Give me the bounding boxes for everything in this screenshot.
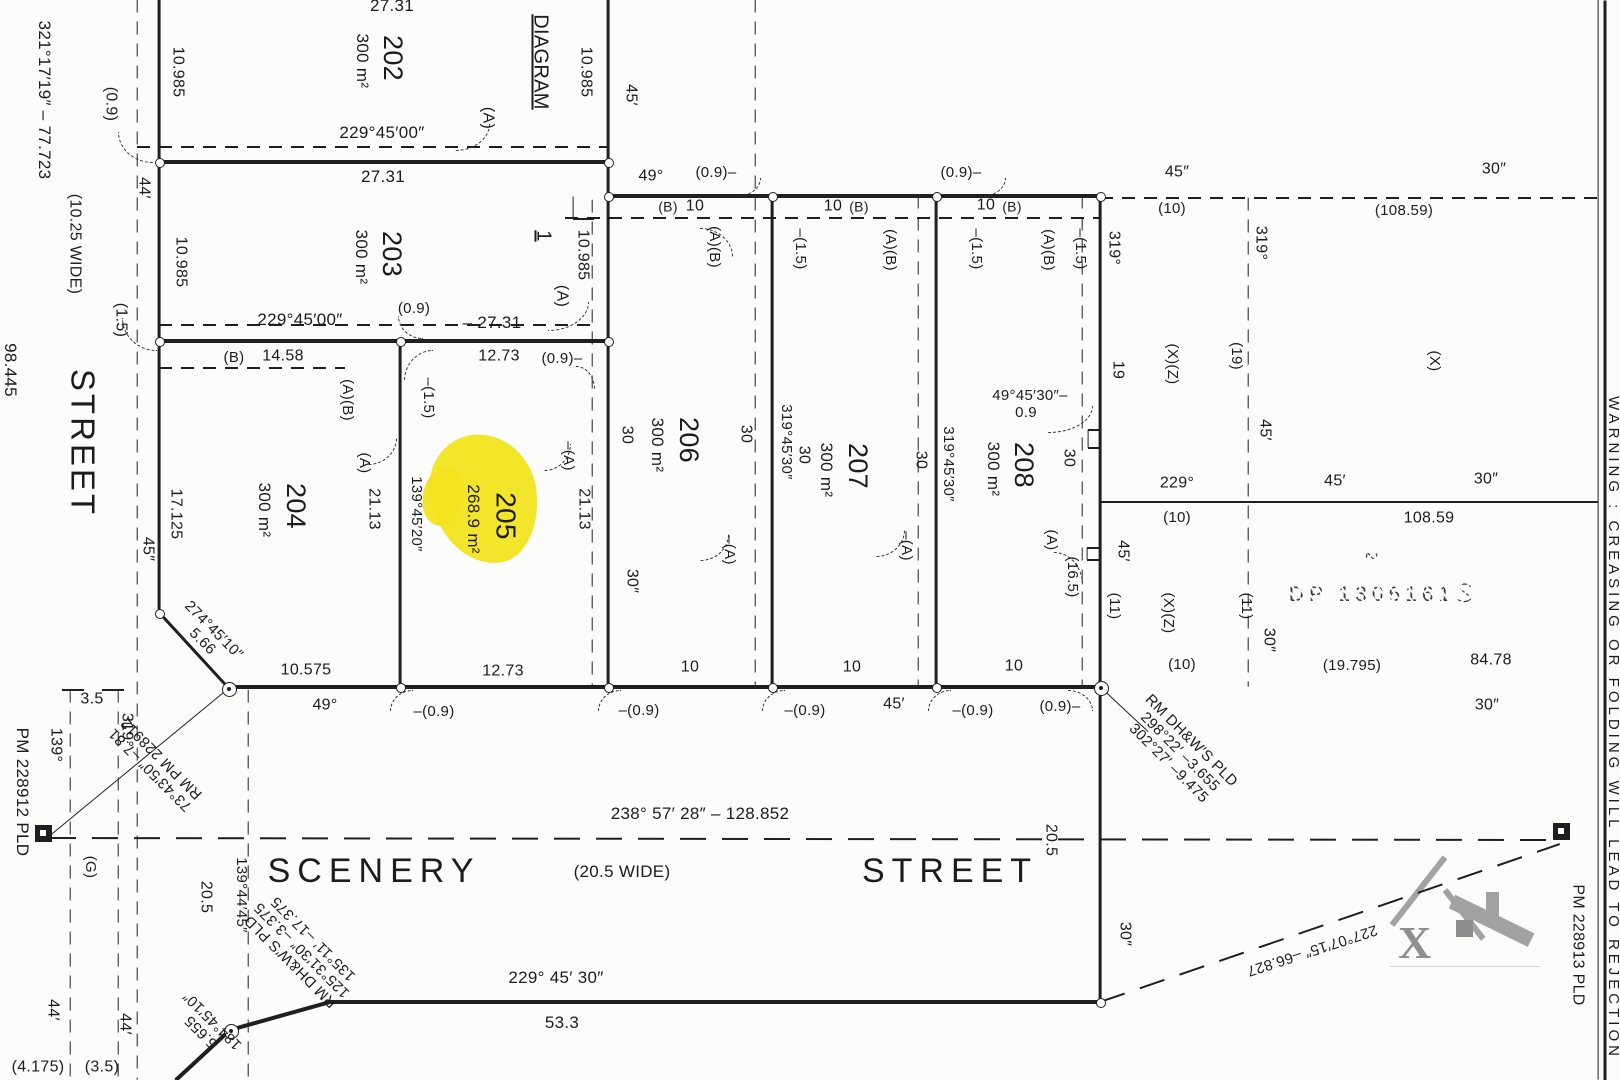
- notch: [1087, 547, 1100, 548]
- dim: –(0.9): [953, 703, 994, 719]
- dim: 53.3: [545, 1014, 579, 1032]
- dim: 10.575: [281, 663, 332, 680]
- bearing: 49°45′30″–: [992, 388, 1068, 404]
- bearing: 319°: [1105, 231, 1122, 265]
- dim: 10: [824, 199, 842, 216]
- dim: –(1.5): [1072, 229, 1088, 270]
- dim: –(A): [898, 531, 914, 561]
- dim: 30″: [623, 569, 640, 593]
- lot-204-number: 204: [282, 483, 310, 529]
- dim: 0.9: [1015, 405, 1037, 421]
- easement: [754, 0, 755, 687]
- boundary: [159, 339, 608, 342]
- dim: 17.125: [167, 489, 184, 540]
- notch: [572, 197, 573, 219]
- dim: (B): [849, 200, 869, 215]
- pm-228912-label: PM 228912 PLD: [13, 728, 31, 857]
- dim: –(A): [721, 535, 737, 565]
- warning-text: WARNING : CREASING OR FOLDING WILL LEAD …: [1605, 396, 1620, 1060]
- dim: (0.9)–: [542, 351, 583, 367]
- dim: 10: [843, 660, 861, 677]
- lot-207-number: 207: [844, 443, 872, 489]
- dim: 44′: [116, 1013, 133, 1035]
- dim: 45′: [1114, 540, 1131, 562]
- lot-202-number: 202: [379, 35, 407, 81]
- dim: 10.985: [169, 47, 186, 98]
- easement: [565, 217, 1100, 218]
- boundary-point-mark: [155, 158, 165, 168]
- lot-204-area: 300 m²: [255, 483, 273, 538]
- survey-plan-canvas: 321°17′19″ – 77.723(0.9)(10.25 WIDE)44′9…: [0, 0, 1620, 1080]
- bearing: 229°45′00″: [257, 311, 342, 329]
- boundary-point-mark: [155, 337, 165, 347]
- boundary-point-mark: [932, 192, 942, 202]
- dim: (11): [1106, 593, 1122, 620]
- boundary: [608, 194, 1100, 197]
- lot-208-area: 300 m²: [984, 442, 1002, 497]
- leader-arc: [118, 132, 153, 163]
- dp-north: [1100, 197, 1598, 198]
- dim: –(A): [560, 441, 576, 471]
- dim: 30″: [1474, 472, 1498, 489]
- dim: (A)(B): [882, 229, 898, 271]
- dim: (16.5): [1064, 557, 1080, 598]
- lot-206-number: 206: [675, 417, 703, 463]
- dim: (10): [1168, 657, 1196, 673]
- dim: –(1.5): [420, 378, 436, 419]
- house-window: [1456, 920, 1473, 937]
- dim: 30″: [1482, 162, 1506, 179]
- lot-202-area: 300 m²: [353, 34, 371, 89]
- dim: (10): [1163, 510, 1191, 526]
- dim: 45′: [1324, 474, 1346, 491]
- house-chimney: [1486, 892, 1499, 916]
- dim: 30: [737, 425, 754, 443]
- dim: 84.78: [1470, 653, 1512, 670]
- boundary: [159, 160, 608, 163]
- dim: 45′: [622, 84, 639, 106]
- bearing: 49°: [638, 169, 663, 186]
- dim: (0.9)–: [941, 165, 982, 181]
- dim: (0.9)–: [696, 165, 737, 181]
- dim: 10: [681, 660, 699, 677]
- dim: 30: [912, 451, 929, 469]
- bearing: 319°: [1252, 226, 1269, 260]
- dim: 21.13: [575, 488, 592, 530]
- dim: (19): [1228, 342, 1244, 370]
- dim: 45′: [883, 697, 905, 714]
- boundary: [398, 341, 401, 687]
- leader-arc: [1048, 406, 1093, 433]
- boundary-point-mark: [932, 683, 942, 693]
- boundary: [770, 196, 773, 687]
- dim: 45′: [1256, 419, 1273, 441]
- dim: 10.985: [574, 230, 591, 281]
- dim: – 27.31: [463, 314, 522, 332]
- dp-number: DP 1306161: [1289, 584, 1455, 606]
- dim: 30: [618, 426, 635, 444]
- boundary-point-mark: [155, 609, 165, 619]
- dim: 19: [1109, 361, 1126, 379]
- dim: –(1.5): [792, 229, 808, 270]
- leader-arc: [762, 690, 785, 711]
- bearing: 229° 45′ 30″: [508, 969, 603, 987]
- bearing: 319°45′30″: [940, 426, 956, 502]
- pm-228913-mark: [1553, 823, 1570, 840]
- dim: (10): [1158, 201, 1186, 217]
- easement: [917, 196, 918, 687]
- dim: (0.9): [398, 301, 430, 317]
- bearing: 319°45′30″: [778, 404, 794, 480]
- dim: 20.5: [1042, 824, 1059, 856]
- lot-205-number: 205: [491, 492, 520, 540]
- diagram-label: DIAGRAM: [530, 14, 551, 109]
- dim: (B): [1002, 200, 1022, 215]
- dim: (A): [1043, 530, 1059, 551]
- street-width: (20.5 WIDE): [574, 863, 671, 881]
- leader-arc: [398, 316, 423, 339]
- dim: 30″: [1475, 698, 1499, 715]
- dim-bearing-left: 321°17′19″ – 77.723: [35, 21, 53, 180]
- dim: (A): [553, 285, 570, 307]
- bearing: 229°45′00″: [339, 124, 424, 142]
- notch: [1088, 447, 1100, 448]
- dim: 10: [1005, 659, 1023, 676]
- street-name-right: STREET: [862, 854, 1038, 890]
- dim: (0.9): [102, 87, 119, 121]
- dim: (X)(Z): [1160, 593, 1176, 634]
- dim: (1.5): [112, 303, 129, 337]
- dim: 14.58: [262, 349, 304, 366]
- leader-arc: [404, 350, 433, 381]
- dim: –(0.9): [619, 703, 660, 719]
- boundary-point-mark: [1096, 192, 1106, 202]
- dim: (X): [1426, 351, 1442, 372]
- bearing: 229°: [1160, 476, 1194, 493]
- dim: 30: [1060, 449, 1077, 467]
- dim: (A)(B): [706, 226, 722, 268]
- survey-corner-mark: [222, 682, 237, 697]
- notch: [1087, 430, 1088, 448]
- rm-note-dhw-left: RM DH&W′S PLD125°31′30″ –3.375135°11′ –1…: [240, 888, 364, 1012]
- dim: 45″: [139, 537, 156, 561]
- dim: 108.59: [1404, 511, 1455, 528]
- dim: (A): [356, 453, 372, 474]
- dim: (4.175): [12, 1060, 65, 1077]
- easement: [1081, 196, 1082, 687]
- dim: (X)(Z): [1164, 344, 1180, 385]
- adjoining-lot-number: 2: [1362, 551, 1380, 561]
- street-south-boundary: [330, 1000, 1100, 1004]
- dp-line: [1100, 501, 1598, 502]
- bearing: 49°: [312, 698, 337, 715]
- dim: 30″: [1116, 922, 1133, 946]
- dim: 44′: [135, 177, 152, 199]
- dim: 10.985: [577, 47, 594, 98]
- dim: (0.9)–: [1040, 699, 1081, 715]
- dim: 27.31: [370, 0, 414, 15]
- notch: [1087, 559, 1100, 560]
- boundary-point-mark: [604, 192, 614, 202]
- pm-228913-label: PM 228913 PLD: [1569, 884, 1586, 1005]
- dim: (A)(B): [1040, 229, 1056, 271]
- boundary-point-mark: [1096, 998, 1106, 1008]
- rm-bearing-diag: 227°07′15″ –66.827: [1245, 921, 1380, 978]
- side-dashed: [69, 690, 70, 1080]
- boundary-point-mark: [768, 192, 778, 202]
- dim: 12.73: [478, 349, 520, 366]
- rm-note-dhw-right: RM DH&W′S PLD298°22′ –3.655302°27′ –9.47…: [1120, 692, 1241, 813]
- dim: –(0.9): [785, 703, 826, 719]
- easement: [159, 367, 345, 368]
- dim: 27.31: [361, 168, 405, 186]
- boundary-point-mark: [768, 683, 778, 693]
- street-width-left: (10.25 WIDE): [66, 194, 83, 295]
- bearing: 139°45′20″: [408, 476, 424, 552]
- dim: (19.795): [1323, 658, 1381, 674]
- bearing: 139°: [47, 728, 64, 762]
- lot-203-number: 203: [378, 231, 406, 277]
- dim: 10: [686, 199, 704, 216]
- road-reserve: [136, 0, 137, 1080]
- street-name-left: STREET: [65, 369, 100, 517]
- boundary-point-mark: [604, 683, 614, 693]
- dim: (A)(B): [339, 379, 355, 421]
- boundary-point-mark: [396, 683, 406, 693]
- lot-203-area: 300 m²: [352, 230, 370, 285]
- boundary: [228, 685, 1100, 689]
- street-centerline: [50, 837, 1562, 841]
- boundary: [934, 196, 937, 687]
- boundary: [1098, 196, 1101, 1002]
- lot-207-area: 300 m²: [817, 443, 835, 498]
- house-baseline: [1390, 966, 1540, 967]
- boundary-point-mark: [396, 337, 406, 347]
- survey-corner-mark: [1094, 681, 1109, 696]
- leader-arc: [928, 690, 951, 711]
- dim: 44′: [44, 999, 61, 1021]
- lot-208-number: 208: [1010, 442, 1038, 488]
- pm-228912-mark: [35, 825, 52, 842]
- dim: 20.5: [197, 881, 214, 913]
- easement: [137, 146, 608, 147]
- dim: 10: [977, 198, 995, 215]
- street-bearing: 238° 57′ 28″ – 128.852: [611, 805, 790, 823]
- dim: (G): [82, 856, 98, 879]
- dim: 45″: [1165, 165, 1189, 182]
- lot-206-area: 300 m²: [648, 418, 666, 473]
- easement: [159, 324, 592, 325]
- dim: 98.445: [1, 343, 19, 397]
- dim: –(0.9): [414, 704, 455, 720]
- boundary: [229, 1000, 330, 1032]
- easement: [591, 200, 592, 687]
- diagram-ref: 1: [533, 230, 554, 241]
- dim: (11): [1238, 593, 1254, 620]
- dim: –(1.5): [968, 229, 984, 270]
- scenery-street-name: SCENERY: [268, 854, 481, 890]
- lot-205-area: 268.9 m²: [464, 484, 482, 554]
- dim: (X): [1456, 583, 1472, 604]
- boundary-point-mark: [604, 337, 614, 347]
- leader-arc: [390, 690, 413, 711]
- bracket-tick: [102, 689, 124, 690]
- notch: [1086, 548, 1087, 560]
- street-front-boundary: [157, 0, 160, 613]
- dim: 10.985: [172, 237, 189, 288]
- dim: 30: [795, 446, 812, 464]
- dim: 21.13: [365, 488, 382, 530]
- dim: 12.73: [482, 664, 524, 681]
- sheet-border-inner: [1597, 0, 1598, 1080]
- notch: [1088, 429, 1100, 430]
- dim: 30″: [1260, 628, 1277, 652]
- boundary-point-mark: [604, 158, 614, 168]
- dim: 3.5: [80, 692, 103, 709]
- dim: (108.59): [1375, 203, 1433, 219]
- dim: (B): [658, 200, 678, 215]
- rm-note-pm228912: 73°43′50″ –7.81RM PM 228912: [106, 714, 206, 814]
- dim: (B): [224, 350, 245, 366]
- dim: (3.5): [85, 1060, 119, 1077]
- dim: (A): [479, 107, 496, 129]
- house-logo-letter: X: [1398, 916, 1431, 969]
